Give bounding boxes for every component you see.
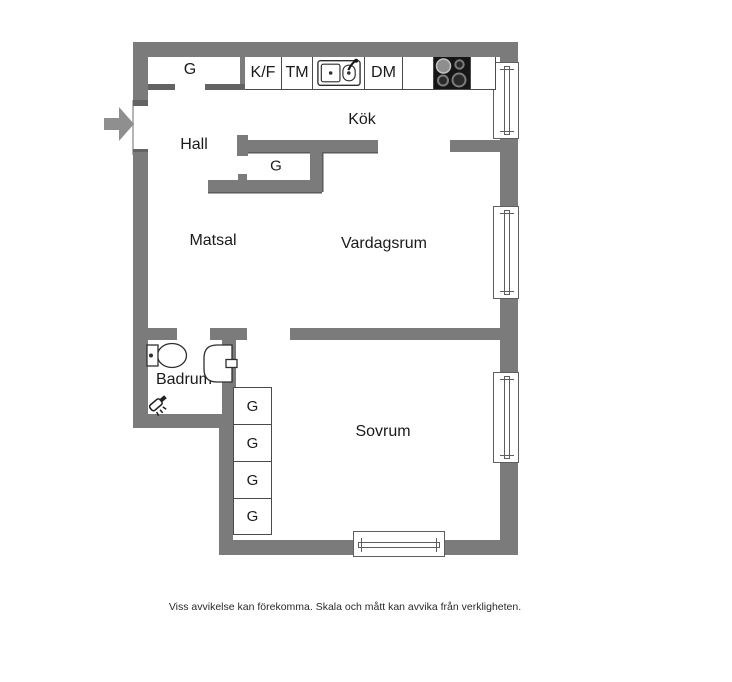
stove-icon [434,57,470,89]
disclaimer-text: Viss avvikelse kan förekomma. Skala och … [169,601,521,613]
wall-middle-seg2 [210,328,247,340]
washing-machine-cell: TM [282,57,313,89]
sink-cell [313,57,365,89]
wardrobe-label-hall-top: G [184,61,196,79]
room-label-bedroom: Sovrum [355,423,410,441]
wall-left-main [133,152,148,428]
wall-right-mid1 [500,139,518,207]
window-glazing [504,210,510,295]
wall-hall-closet-top-left [148,84,175,90]
window-bedroom-east [493,372,519,463]
toilet-icon [146,342,188,369]
wall-right-lower [500,463,518,555]
wall-middle-seg3 [290,328,500,340]
kitchen-sink-icon [313,57,364,89]
dishwasher-cell: DM [365,57,403,89]
counter-end-cell [471,57,496,89]
window-bedroom-south [353,531,445,557]
entrance-door-jamb-top [133,100,148,106]
wall-hall-kitchen [248,140,378,152]
wall-hall-closet-bottom-tab [238,174,247,180]
wall-kitchen-stub [450,140,500,152]
room-label-kitchen: Kök [348,111,376,129]
fridge-freezer-cell: K/F [245,57,282,89]
wardrobe-box: G [233,461,272,500]
window-glazing [504,66,510,135]
washbasin-icon [202,343,238,385]
wall-hall-tab [237,135,248,156]
fridge-freezer-label: K/F [251,64,276,82]
wardrobe-box: G [233,498,272,535]
wall-top [133,42,518,57]
dishwasher-label: DM [371,64,396,82]
wardrobe-label: G [247,435,259,452]
wardrobe-label: G [247,472,259,489]
room-label-hall: Hall [180,136,208,154]
wall-hall-closet-top-right [205,84,247,90]
shower-icon [142,388,174,422]
wardrobe-label-hall-inner: G [270,158,282,175]
entrance-arrow-icon [104,105,135,143]
window-glazing [358,542,440,548]
washing-machine-label: TM [285,64,308,82]
wall-west-lower [219,414,233,555]
wall-middle-seg1 [133,328,177,340]
wardrobe-box: G [233,424,272,463]
stove-cell [434,57,471,89]
wall-left-upper [133,57,148,103]
window-kitchen [493,62,519,139]
wall-hall-closet-bottom [208,180,322,192]
kitchen-counter: K/F TM DM [245,57,496,90]
room-label-living: Vardagsrum [341,235,427,253]
wardrobe-box: G [233,387,272,426]
room-label-dining: Matsal [189,232,236,250]
wardrobe-label: G [247,508,259,525]
floor-plan: K/F TM DM .counter .c [0,0,732,682]
wall-right-mid2 [500,299,518,373]
window-glazing [504,376,510,459]
window-living-room [493,206,519,299]
wardrobe-label: G [247,398,259,415]
counter-empty-cell [403,57,434,89]
